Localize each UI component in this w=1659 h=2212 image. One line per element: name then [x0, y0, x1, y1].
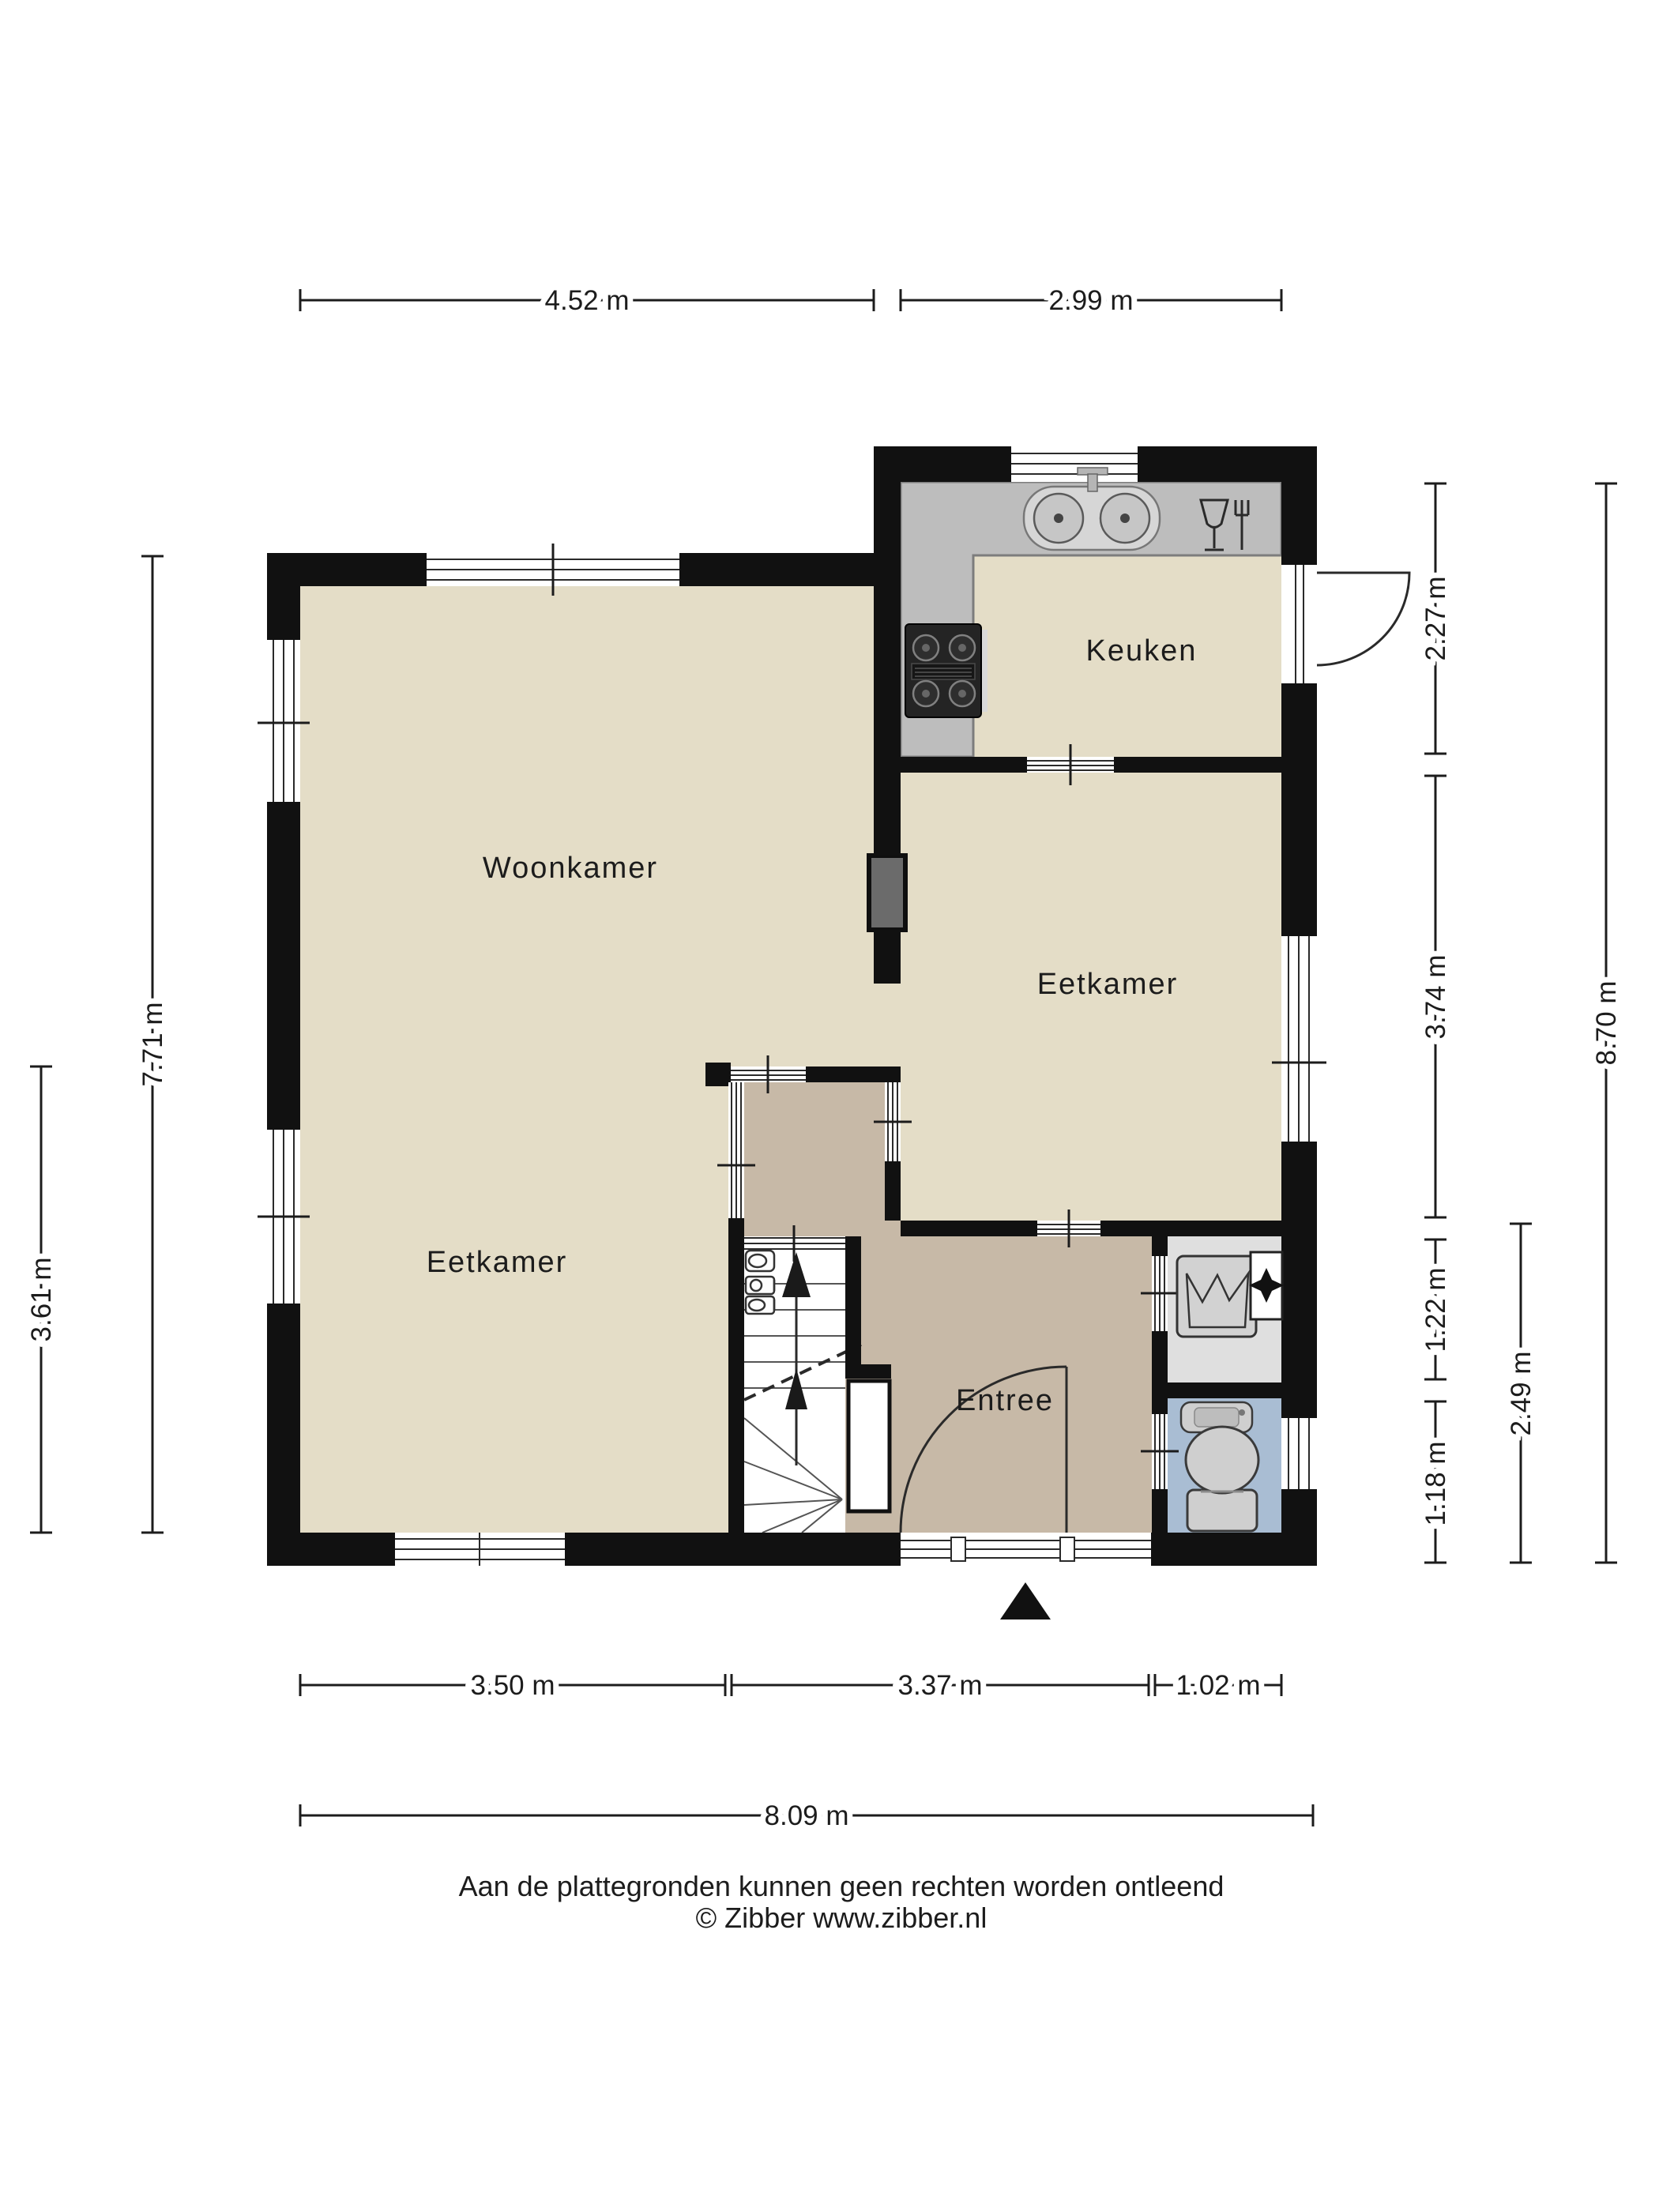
wall-stair-left	[728, 1218, 744, 1533]
dim-top-1: 4.52 m	[545, 285, 630, 316]
closet-under-stairs	[848, 1381, 890, 1511]
door-kitchen	[1281, 565, 1409, 683]
label-entree: Entree	[956, 1384, 1054, 1417]
window-wc	[1281, 1418, 1317, 1489]
footer-disclaimer: Aan de plattegronden kunnen geen rechten…	[459, 1870, 1224, 1902]
dim-bottom-total: 8.09 m	[765, 1800, 849, 1831]
wall-stair-right	[845, 1236, 861, 1379]
stove-icon	[905, 624, 987, 717]
dim-right-partial: 2.49 m	[1506, 1352, 1537, 1436]
floorplan-canvas: Woonkamer Keuken Eetkamer Eetkamer Entre…	[0, 0, 1659, 2212]
footer: Aan de plattegronden kunnen geen rechten…	[459, 1870, 1224, 1934]
meter-icon	[746, 1251, 774, 1314]
wall-middle-lower	[874, 930, 901, 984]
toilet-icon	[1186, 1427, 1258, 1531]
wall-middle-mid	[874, 757, 901, 856]
dim-right-1: 2.27 m	[1420, 577, 1451, 661]
window-kitchen-top	[1011, 446, 1138, 482]
label-keuken: Keuken	[1086, 634, 1198, 668]
wall-tech-wc-divider	[1168, 1382, 1281, 1398]
dim-right-2: 3.74 m	[1420, 955, 1451, 1040]
floorplan-page: Woonkamer Keuken Eetkamer Eetkamer Entre…	[0, 0, 1659, 2212]
wall-hall-stub-cap	[705, 1063, 731, 1086]
label-eetkamer-onder: Eetkamer	[427, 1246, 568, 1279]
wall-hall-corner	[885, 1161, 901, 1221]
dim-left-total: 7.71 m	[137, 1003, 168, 1087]
dim-bottom-3: 1.02 m	[1176, 1670, 1261, 1701]
duct-shaft	[869, 856, 905, 930]
dim-right-total: 8.70 m	[1591, 981, 1622, 1066]
dim-bottom-2: 3.37 m	[898, 1670, 983, 1701]
wall-middle-upper	[874, 586, 901, 757]
label-eetkamer-boven: Eetkamer	[1037, 968, 1179, 1001]
dim-bottom-1: 3.50 m	[471, 1670, 555, 1701]
dim-right-4: 1.18 m	[1420, 1442, 1451, 1526]
footer-copyright: © Zibber www.zibber.nl	[696, 1902, 987, 1934]
boiler-icon	[1177, 1256, 1256, 1337]
label-woonkamer: Woonkamer	[483, 852, 658, 885]
entrance-arrow-icon	[1000, 1582, 1051, 1619]
window-bottom-left	[395, 1533, 565, 1566]
dim-top-2: 2.99 m	[1049, 285, 1134, 316]
dim-right-3: 1.22 m	[1420, 1268, 1451, 1352]
ventilation-icon	[1249, 1252, 1284, 1319]
dim-left-partial: 3.61 m	[26, 1258, 57, 1342]
